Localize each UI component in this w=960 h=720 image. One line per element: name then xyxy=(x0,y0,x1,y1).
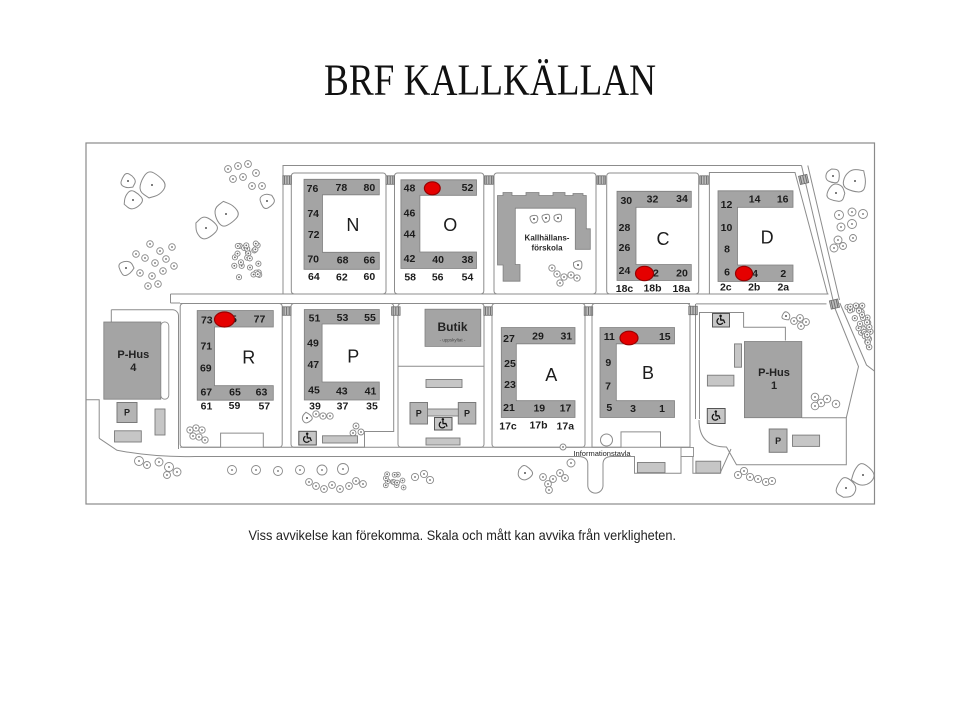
svg-text:17b: 17b xyxy=(529,419,547,431)
svg-text:B: B xyxy=(642,363,654,383)
svg-text:Butik: Butik xyxy=(438,320,468,334)
svg-text:2: 2 xyxy=(780,268,786,280)
svg-text:28: 28 xyxy=(619,222,631,234)
svg-text:P-Hus: P-Hus xyxy=(117,349,149,361)
svg-text:5: 5 xyxy=(606,402,612,414)
svg-text:78: 78 xyxy=(336,182,348,194)
svg-text:76: 76 xyxy=(307,183,319,195)
svg-text:1: 1 xyxy=(771,380,777,392)
svg-text:71: 71 xyxy=(200,340,212,352)
svg-text:D: D xyxy=(761,228,774,248)
svg-text:48: 48 xyxy=(404,182,416,194)
svg-text:P: P xyxy=(416,408,422,418)
svg-text:26: 26 xyxy=(619,242,631,254)
svg-text:56: 56 xyxy=(432,272,444,284)
svg-text:42: 42 xyxy=(404,253,416,265)
svg-text:Kallhällans-: Kallhällans- xyxy=(525,234,570,243)
svg-text:52: 52 xyxy=(462,182,474,194)
svg-text:2a: 2a xyxy=(777,281,789,293)
svg-text:32: 32 xyxy=(647,194,659,206)
svg-text:63: 63 xyxy=(256,386,268,398)
svg-text:53: 53 xyxy=(337,312,349,324)
svg-text:49: 49 xyxy=(307,337,319,349)
svg-text:43: 43 xyxy=(336,386,348,398)
svg-text:46: 46 xyxy=(404,208,416,220)
svg-text:30: 30 xyxy=(620,195,632,207)
svg-text:6: 6 xyxy=(724,266,730,278)
svg-text:R: R xyxy=(242,347,255,367)
svg-text:55: 55 xyxy=(364,312,376,324)
svg-text:57: 57 xyxy=(258,401,270,413)
svg-text:N: N xyxy=(346,215,359,235)
svg-text:58: 58 xyxy=(404,271,416,283)
svg-text:- uppskyltat -: - uppskyltat - xyxy=(440,338,466,343)
svg-text:2c: 2c xyxy=(720,281,732,293)
svg-text:P-Hus: P-Hus xyxy=(758,367,790,379)
svg-text:Informationstavla: Informationstavla xyxy=(573,449,631,458)
svg-text:60: 60 xyxy=(364,271,376,283)
svg-text:9: 9 xyxy=(605,357,611,369)
svg-text:67: 67 xyxy=(200,386,212,398)
svg-text:66: 66 xyxy=(364,254,376,266)
svg-text:4: 4 xyxy=(130,362,137,374)
svg-text:Viss avvikelse kan förekomma.: Viss avvikelse kan förekomma. Skala och … xyxy=(249,527,677,543)
svg-text:25: 25 xyxy=(504,358,516,370)
svg-text:51: 51 xyxy=(309,313,321,325)
svg-text:64: 64 xyxy=(308,271,320,283)
svg-text:21: 21 xyxy=(503,402,515,414)
svg-text:19: 19 xyxy=(533,403,545,415)
svg-text:72: 72 xyxy=(308,229,320,241)
svg-text:31: 31 xyxy=(560,331,572,343)
svg-text:23: 23 xyxy=(504,379,516,391)
svg-text:16: 16 xyxy=(777,193,789,205)
svg-text:59: 59 xyxy=(229,400,241,412)
svg-text:61: 61 xyxy=(201,401,213,413)
svg-text:8: 8 xyxy=(724,243,730,255)
svg-text:C: C xyxy=(657,229,670,249)
svg-text:12: 12 xyxy=(721,199,733,211)
svg-text:10: 10 xyxy=(721,222,733,234)
svg-text:69: 69 xyxy=(200,362,212,374)
svg-text:38: 38 xyxy=(462,254,474,266)
svg-text:80: 80 xyxy=(364,182,376,194)
svg-text:62: 62 xyxy=(336,271,348,283)
svg-text:11: 11 xyxy=(604,331,615,343)
svg-text:41: 41 xyxy=(365,386,377,398)
svg-text:70: 70 xyxy=(307,253,319,265)
svg-text:77: 77 xyxy=(254,314,266,326)
svg-text:27: 27 xyxy=(503,333,515,345)
svg-text:73: 73 xyxy=(201,314,213,326)
svg-text:54: 54 xyxy=(462,271,474,283)
svg-text:17: 17 xyxy=(560,403,572,415)
svg-text:P: P xyxy=(775,436,781,446)
svg-text:förskola: förskola xyxy=(531,244,563,253)
svg-text:74: 74 xyxy=(307,208,319,220)
svg-text:P: P xyxy=(464,408,470,418)
svg-text:17c: 17c xyxy=(499,420,517,432)
svg-text:P: P xyxy=(124,408,130,418)
svg-text:18a: 18a xyxy=(673,283,691,295)
svg-text:37: 37 xyxy=(337,400,349,412)
svg-text:34: 34 xyxy=(676,193,688,205)
svg-text:65: 65 xyxy=(229,386,241,398)
svg-text:1: 1 xyxy=(659,403,665,415)
svg-text:29: 29 xyxy=(532,331,544,343)
svg-text:A: A xyxy=(545,365,557,385)
svg-text:3: 3 xyxy=(630,403,636,415)
svg-text:O: O xyxy=(443,215,457,235)
svg-text:45: 45 xyxy=(308,384,320,396)
svg-text:44: 44 xyxy=(404,229,416,241)
svg-text:2b: 2b xyxy=(748,282,760,294)
svg-text:15: 15 xyxy=(659,331,671,343)
svg-text:40: 40 xyxy=(432,254,444,266)
svg-text:18c: 18c xyxy=(616,283,634,295)
svg-text:24: 24 xyxy=(619,265,631,277)
svg-text:P: P xyxy=(347,347,359,367)
svg-text:17a: 17a xyxy=(557,420,575,432)
svg-text:7: 7 xyxy=(605,380,611,392)
svg-text:35: 35 xyxy=(366,400,378,412)
svg-text:20: 20 xyxy=(676,267,688,279)
svg-text:18b: 18b xyxy=(643,282,661,294)
svg-text:BRF KALLKÄLLAN: BRF KALLKÄLLAN xyxy=(324,55,656,105)
svg-text:47: 47 xyxy=(307,359,319,371)
svg-text:14: 14 xyxy=(749,193,761,205)
svg-text:68: 68 xyxy=(337,254,349,266)
